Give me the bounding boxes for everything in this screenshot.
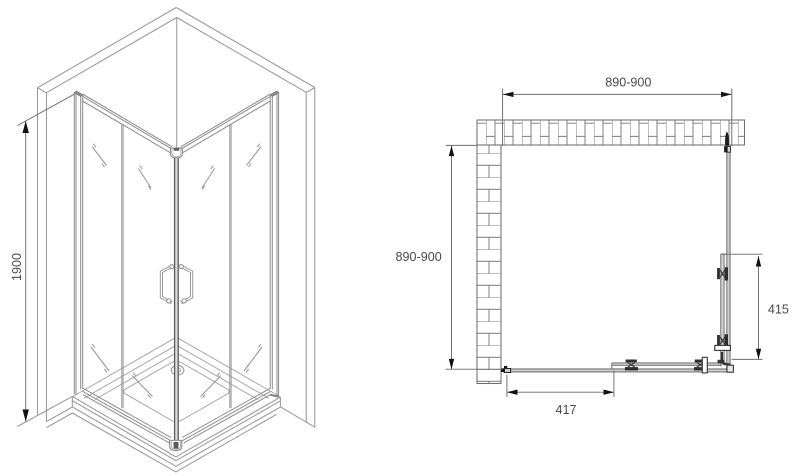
svg-text:890-900: 890-900 xyxy=(605,75,651,89)
svg-text:415: 415 xyxy=(768,302,789,316)
svg-text:890-900: 890-900 xyxy=(395,250,441,264)
svg-text:417: 417 xyxy=(555,403,576,417)
svg-text:1900: 1900 xyxy=(10,253,24,281)
